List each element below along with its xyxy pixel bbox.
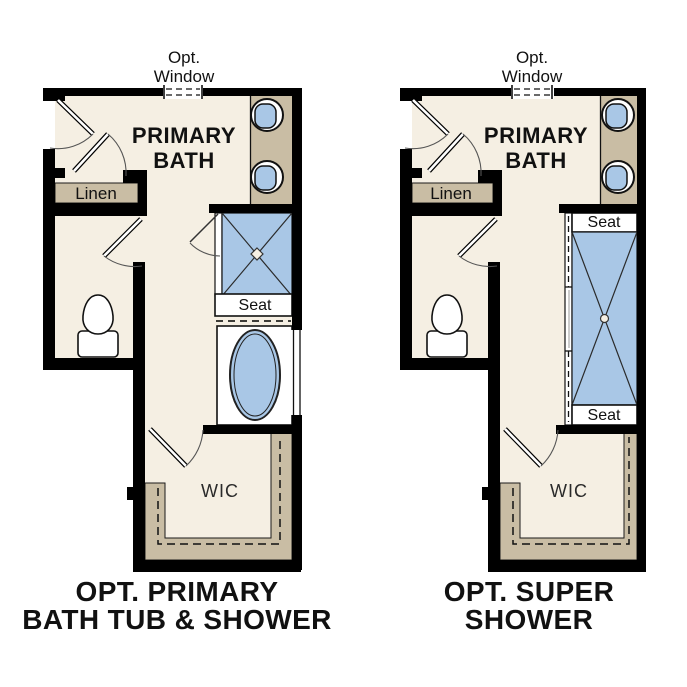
caption-line2: SHOWER (465, 604, 593, 635)
window-label-line1: Opt. (516, 48, 548, 67)
window-top-left (163, 85, 203, 99)
seat-top-label: Seat (588, 214, 621, 231)
window-label-line1: Opt. (168, 48, 200, 67)
room-label-line2: BATH (505, 148, 566, 173)
bathtub (217, 326, 292, 425)
floorplan-right: Opt. Window PRIMARY BATH Linen Seat Seat… (400, 48, 646, 635)
caption-line2: BATH TUB & SHOWER (22, 604, 332, 635)
caption-line1: OPT. SUPER (444, 576, 614, 607)
linen-label: Linen (430, 184, 472, 203)
super-shower (565, 213, 637, 425)
wic-label: WIC (201, 481, 239, 501)
room-label-line1: PRIMARY (132, 123, 236, 148)
window-tub (291, 330, 303, 415)
window-label-line2: Window (154, 67, 215, 86)
caption-line1: OPT. PRIMARY (76, 576, 279, 607)
shower-drain (601, 315, 609, 323)
window-label-line2: Window (502, 67, 563, 86)
sink (251, 99, 283, 131)
seat-bottom-label: Seat (588, 407, 621, 424)
sink (251, 161, 283, 193)
wic-label: WIC (550, 481, 588, 501)
seat-label: Seat (239, 297, 272, 314)
room-label-line1: PRIMARY (484, 123, 588, 148)
floorplan-canvas: Opt. Window PRIMARY BATH Linen Seat WIC … (0, 0, 687, 687)
floorplan-figure: Opt. Window PRIMARY BATH Linen Seat WIC … (0, 0, 687, 687)
sink (602, 161, 634, 193)
vanity-left (250, 96, 292, 204)
sink (602, 99, 634, 131)
room-label-line2: BATH (153, 148, 214, 173)
vanity-right (600, 96, 637, 204)
linen-label: Linen (75, 184, 117, 203)
shower-glass (215, 213, 222, 296)
window-top-right (511, 85, 554, 99)
floorplan-left: Opt. Window PRIMARY BATH Linen Seat WIC … (22, 48, 332, 635)
